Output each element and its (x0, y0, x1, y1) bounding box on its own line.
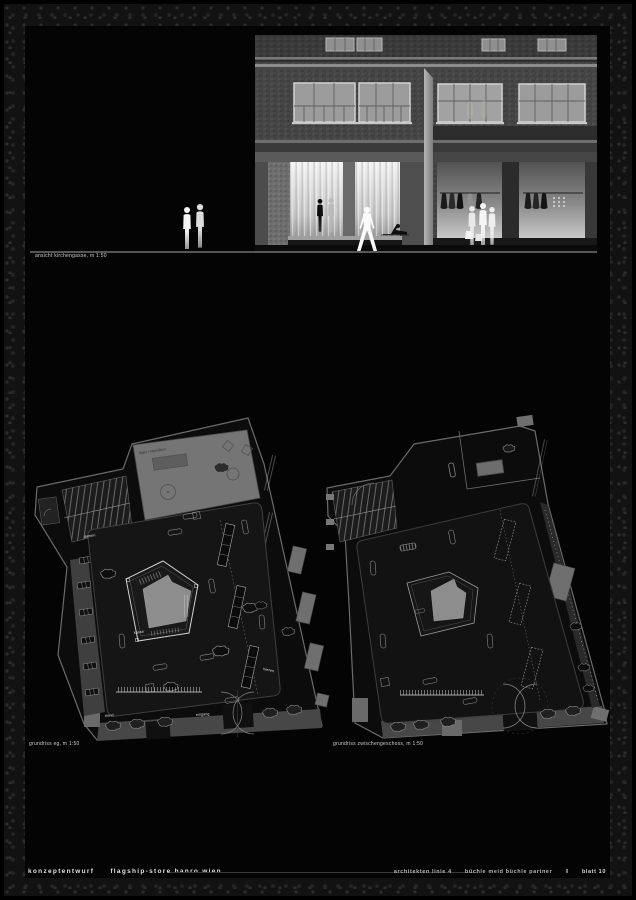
elevation-caption: ansicht kirchengasse, m 1:50 (35, 253, 107, 259)
title-block-right: architekten linie 4 büchle meid büchle p… (394, 869, 606, 875)
plan-eg-caption: grundriss eg, m 1:50 (29, 741, 80, 747)
elevation-drawing (30, 35, 597, 253)
presentation-sheet: lager / expedition (0, 0, 636, 900)
plan-ground-floor: lager / expedition (35, 418, 329, 741)
project-title: konzeptentwurf (28, 868, 94, 875)
downspout (424, 68, 433, 245)
drawing-canvas: lager / expedition (0, 0, 636, 900)
plan-zg-caption: grundriss zwischengeschoss, m 1:50 (333, 741, 423, 747)
separator-mark: ‖ (565, 869, 568, 875)
scale-bar (116, 687, 202, 692)
architect-partners: büchle meid büchle partner (465, 869, 552, 875)
sheet-number: blatt 10 (582, 869, 606, 875)
label-trend: trend (105, 713, 114, 718)
architect-name: architekten linie 4 (394, 869, 452, 875)
scale-bar (400, 690, 484, 695)
plan-mezzanine (326, 415, 609, 738)
upper-floor-windows (292, 83, 587, 124)
